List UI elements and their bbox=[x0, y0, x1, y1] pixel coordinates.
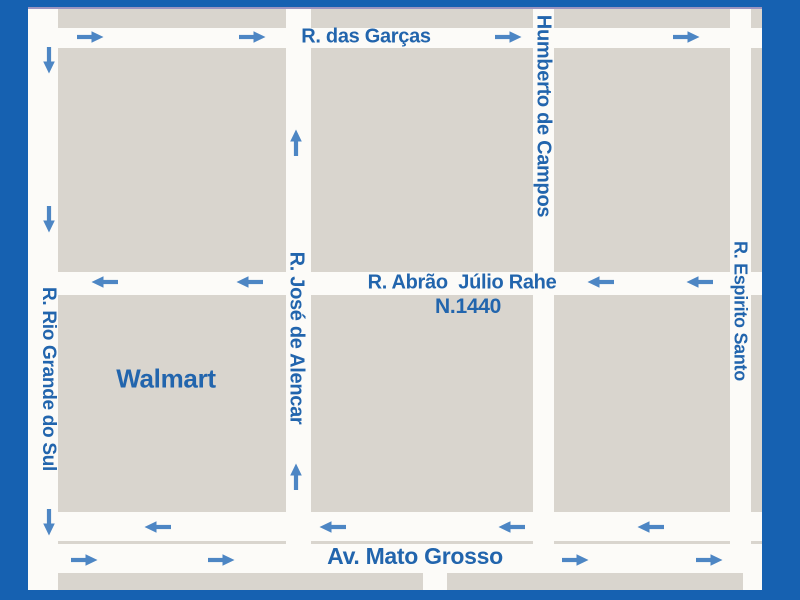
one-way-arrow-left bbox=[90, 275, 120, 289]
city-block bbox=[554, 541, 730, 544]
city-block bbox=[58, 48, 286, 272]
one-way-arrow-right bbox=[237, 30, 267, 44]
street-label-r-abrao-julio-rahe: R. Abrão Júlio Rahe bbox=[368, 273, 557, 294]
street-label-r-das-garcas: R. das Garças bbox=[301, 27, 431, 48]
one-way-arrow-left bbox=[318, 520, 348, 534]
one-way-arrow-left bbox=[685, 275, 715, 289]
city-block bbox=[751, 48, 762, 272]
one-way-arrow-right bbox=[206, 553, 236, 567]
city-block bbox=[311, 295, 533, 512]
one-way-arrow-up bbox=[289, 128, 303, 158]
city-block bbox=[751, 9, 762, 28]
city-block bbox=[554, 9, 730, 28]
one-way-arrow-down bbox=[42, 507, 56, 537]
city-block bbox=[58, 9, 286, 28]
one-way-arrow-left bbox=[235, 275, 265, 289]
one-way-arrow-right bbox=[69, 553, 99, 567]
one-way-arrow-down bbox=[42, 204, 56, 234]
city-block bbox=[58, 295, 286, 512]
one-way-arrow-left bbox=[497, 520, 527, 534]
city-block bbox=[447, 573, 743, 590]
street-label-humberto-de-campos: Humberto de Campos bbox=[533, 15, 554, 217]
one-way-arrow-right bbox=[671, 30, 701, 44]
one-way-arrow-left bbox=[636, 520, 666, 534]
map-page: UNISAÚDEMS bbox=[0, 0, 800, 600]
city-block bbox=[58, 573, 423, 590]
one-way-arrow-up bbox=[289, 462, 303, 492]
walmart-label: Walmart bbox=[116, 365, 216, 392]
city-block bbox=[554, 295, 730, 512]
map-canvas: UNISAÚDEMS bbox=[28, 7, 762, 590]
street-label-r-rio-grande-do-sul: R. Rio Grande do Sul bbox=[38, 287, 58, 471]
address-label: N.1440 bbox=[435, 296, 501, 318]
one-way-arrow-right bbox=[493, 30, 523, 44]
city-block bbox=[554, 48, 730, 272]
one-way-arrow-right bbox=[694, 553, 724, 567]
city-block bbox=[58, 541, 286, 544]
one-way-arrow-right bbox=[560, 553, 590, 567]
street-label-av-mato-grosso: Av. Mato Grosso bbox=[327, 544, 503, 568]
city-block bbox=[311, 48, 533, 272]
one-way-arrow-down bbox=[42, 45, 56, 75]
street-label-r-jose-de-alencar: R. José de Alencar bbox=[286, 252, 307, 425]
one-way-arrow-left bbox=[586, 275, 616, 289]
one-way-arrow-right bbox=[75, 30, 105, 44]
one-way-arrow-left bbox=[143, 520, 173, 534]
city-block bbox=[751, 541, 762, 544]
city-block bbox=[751, 295, 762, 512]
street-label-r-espirito-santo: R. Espirito Santo bbox=[731, 241, 750, 381]
